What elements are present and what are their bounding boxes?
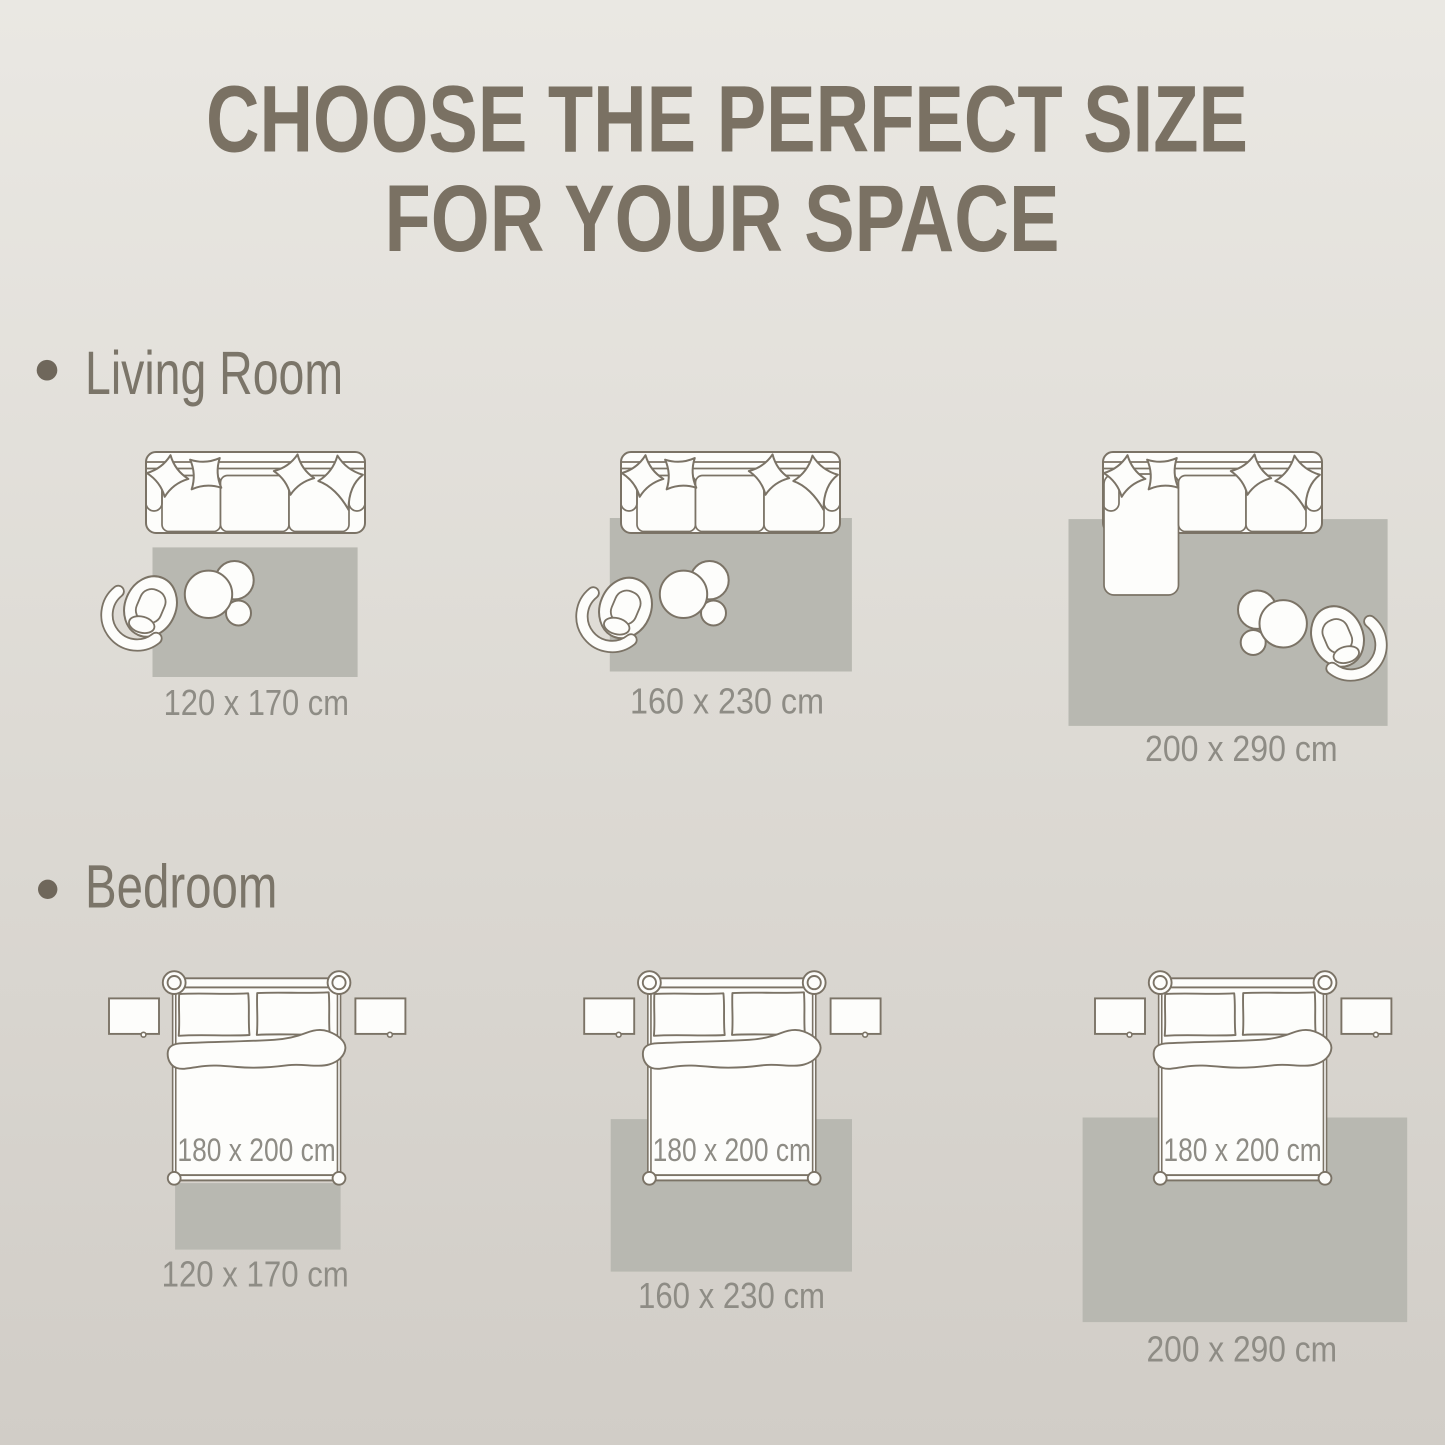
svg-text:Bedroom: Bedroom bbox=[85, 852, 277, 920]
svg-text:Living Room: Living Room bbox=[85, 339, 343, 407]
svg-text:FOR YOUR SPACE: FOR YOUR SPACE bbox=[385, 166, 1060, 272]
svg-text:200 x 290 cm: 200 x 290 cm bbox=[1147, 1328, 1338, 1369]
svg-text:160 x 230 cm: 160 x 230 cm bbox=[630, 680, 824, 721]
svg-text:120 x 170 cm: 120 x 170 cm bbox=[162, 1254, 349, 1295]
svg-text:200 x 290 cm: 200 x 290 cm bbox=[1145, 728, 1338, 769]
svg-text:160 x 230 cm: 160 x 230 cm bbox=[638, 1275, 825, 1316]
svg-text:120 x 170 cm: 120 x 170 cm bbox=[164, 682, 349, 723]
svg-text:CHOOSE THE PERFECT SIZE: CHOOSE THE PERFECT SIZE bbox=[206, 67, 1248, 173]
